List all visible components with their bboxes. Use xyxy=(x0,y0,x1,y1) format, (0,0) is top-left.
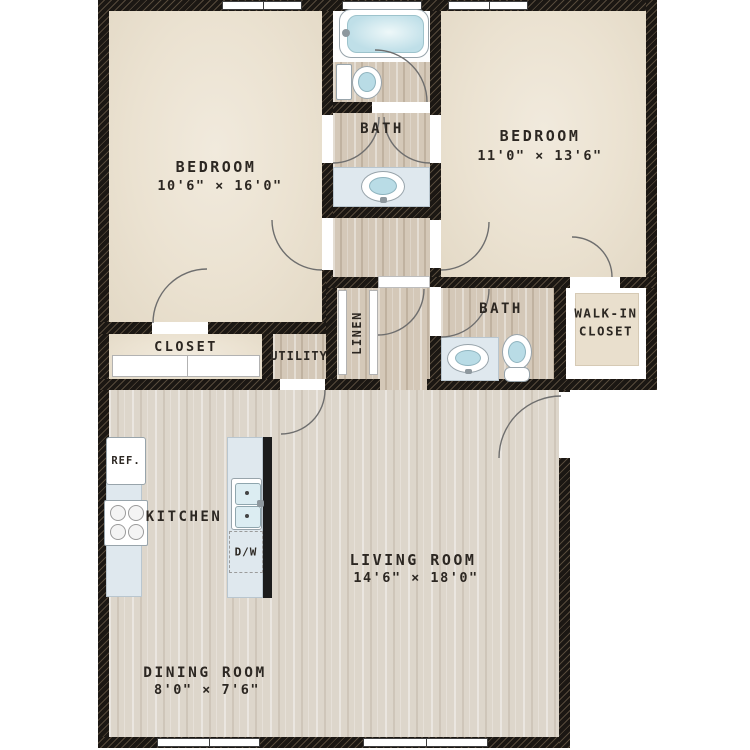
bath-1-right-door-opening xyxy=(430,115,441,163)
closet-door-opening xyxy=(152,322,208,334)
burner xyxy=(110,505,126,521)
bath-2-door-opening xyxy=(430,287,441,336)
stove xyxy=(104,500,148,546)
wall xyxy=(333,207,430,218)
wall xyxy=(333,102,372,113)
sink-faucet xyxy=(257,500,264,507)
bedroom-2-door-opening xyxy=(430,220,441,268)
linen-shelf-left xyxy=(338,290,347,375)
bedroom-2-label: BEDROOM xyxy=(500,127,581,145)
bathtub-faucet xyxy=(342,29,350,37)
burner xyxy=(128,505,144,521)
linen-door xyxy=(369,290,378,375)
window xyxy=(157,738,260,747)
linen-label: LINEN xyxy=(350,311,364,355)
sink-drain xyxy=(245,491,249,495)
hallway-floor xyxy=(333,218,430,277)
corridor-floor xyxy=(378,288,430,390)
wall xyxy=(554,288,566,379)
bath-1-sink-basin xyxy=(369,177,397,195)
bedroom-1-door-opening xyxy=(322,218,333,270)
tub-compartment-door-opening xyxy=(372,102,430,113)
refrigerator-label: REF. xyxy=(111,455,140,467)
bath-1-label: BATH xyxy=(360,121,404,137)
walk-in-closet-label-line2: CLOSET xyxy=(579,324,633,339)
wall xyxy=(325,379,380,390)
wall xyxy=(430,277,657,288)
bath-1-sink-faucet xyxy=(380,197,387,203)
toilet-2-base xyxy=(504,367,530,382)
burner xyxy=(110,524,126,540)
wall xyxy=(646,0,657,390)
utility-label: UTILITY xyxy=(270,349,328,363)
wall xyxy=(98,322,333,334)
window xyxy=(363,738,488,747)
bath-2-sink-faucet xyxy=(465,369,472,374)
dishwasher-label: D/W xyxy=(235,546,258,559)
hallway-threshold xyxy=(378,276,430,288)
utility-door-opening xyxy=(280,379,325,390)
closet-door-divider xyxy=(187,356,188,376)
dining-room-dims: 8'0" × 7'6" xyxy=(154,682,260,698)
wall xyxy=(326,288,337,379)
kitchen-sink xyxy=(231,478,262,530)
island-bar xyxy=(263,437,272,598)
bathtub-water xyxy=(347,15,424,53)
wall xyxy=(98,0,109,748)
living-room-label: LIVING ROOM xyxy=(350,551,477,569)
walk-in-closet-label-line1: WALK-IN xyxy=(574,306,637,321)
wall xyxy=(98,379,280,390)
bath-2-sink-basin xyxy=(455,350,481,366)
bath-2-label: BATH xyxy=(479,301,523,317)
toilet-2-seat xyxy=(508,341,526,363)
entry-door-opening xyxy=(559,392,570,458)
window xyxy=(448,1,528,10)
living-room-dims: 14'6" × 18'0" xyxy=(353,570,478,586)
closet-sliding-doors xyxy=(112,355,260,377)
toilet-tank xyxy=(336,64,352,100)
toilet-seat xyxy=(358,72,376,92)
kitchen-label: KITCHEN xyxy=(146,509,223,525)
burner xyxy=(128,524,144,540)
window xyxy=(222,1,302,10)
bathtub xyxy=(339,9,429,58)
wall xyxy=(326,277,380,288)
bath-1-left-door-opening xyxy=(322,115,333,163)
walk-in-closet-door-opening xyxy=(570,277,620,288)
dining-room-label: DINING ROOM xyxy=(143,665,267,681)
bedroom-1-label: BEDROOM xyxy=(176,158,257,176)
closet-label: CLOSET xyxy=(154,339,218,355)
sink-drain xyxy=(245,514,249,518)
floor-plan: REF. D/W BEDROOM 10'6" × 16 xyxy=(0,0,750,750)
bedroom-1-dims: 10'6" × 16'0" xyxy=(157,178,282,194)
bedroom-2-dims: 11'0" × 13'6" xyxy=(477,148,602,164)
